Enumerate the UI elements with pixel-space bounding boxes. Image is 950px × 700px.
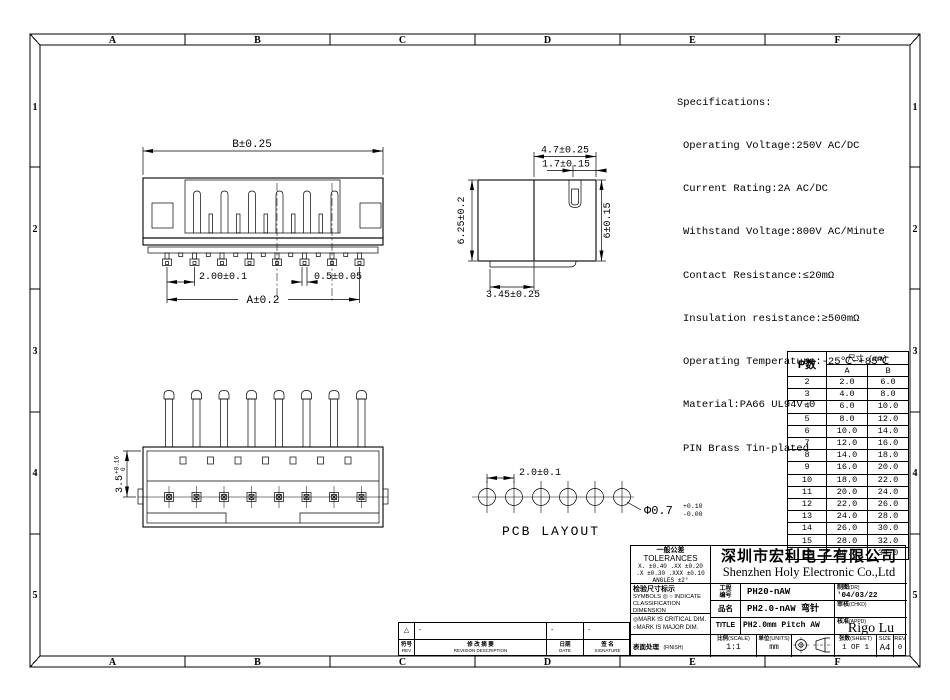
frame-col-label: E — [689, 35, 696, 46]
frame-col-label: A — [109, 35, 117, 46]
size-box: SIZE A4 — [877, 635, 894, 657]
pcb-layout-caption: PCB LAYOUT — [502, 524, 600, 539]
part-no-label: 工程编号 — [711, 584, 741, 601]
spec-line: Current Rating:2A AC/DC — [677, 182, 889, 196]
front-view: B±0.25 2.00±0.1 0.5±0.05 A±0.2 — [143, 139, 383, 307]
frame-col-label: B — [254, 657, 261, 668]
units-value: mm — [757, 643, 791, 653]
spec-line: Contact Resistance:≤20mΩ — [677, 269, 889, 283]
units-label-cn: 单位 — [758, 636, 769, 642]
sheet-label-cn: 张数 — [839, 636, 850, 642]
company-box: 深圳市宏利电子有限公司 Shenzhen Holy Electronic Co.… — [711, 546, 907, 584]
tolerance-line: ANGLES ±2° — [631, 577, 710, 584]
revision-header-date: 日期 DATE — [547, 640, 584, 655]
dim-pcb-pitch: 2.0±0.1 — [519, 468, 561, 479]
sheet-value: 1 OF 1 — [835, 643, 876, 653]
frame-row-label: 1 — [913, 102, 918, 113]
symbols-note-line: CLASSIFICATION DIMENSION — [633, 601, 708, 614]
table-row: 58.012.0 — [788, 413, 909, 425]
sheet-box: 张数(SHEET) 1 OF 1 — [835, 635, 877, 657]
drawn-box: 制图(DR) '04/03/22 — [835, 584, 907, 601]
dim-side-height-right: 6±0.15 — [603, 202, 614, 238]
title-value: PH2.0mm Pitch AW DIP CONN — [741, 618, 835, 635]
projection-box — [792, 635, 835, 657]
size-value: A4 — [877, 643, 893, 653]
dim-top-depth: 3.5 +0.16 0 — [114, 456, 128, 493]
side-view: 4.7±0.25 1.7±0.15 6.25±0.2 6±0.15 3.45±0… — [457, 146, 614, 302]
approved-label-en: (APPD) — [849, 619, 866, 625]
frame-col-label: A — [109, 657, 117, 668]
dim-front-pitch: 2.00±0.1 — [199, 272, 247, 283]
finish-label-cn: 表面处理 — [633, 644, 659, 651]
size-table-header-pins: P数 — [788, 352, 827, 377]
scale-label-cn: 比例 — [717, 636, 728, 642]
frame-col-label: F — [834, 657, 840, 668]
frame-row-label: 2 — [913, 224, 918, 235]
title-block: 一般公差 TOLERANCES X. ±0.40 .XX ±0.20 .X ±0… — [630, 545, 906, 656]
frame-row-label: 2 — [33, 224, 38, 235]
revision-entry-signature: - — [584, 623, 631, 640]
checked-label-cn: 审核 — [837, 602, 849, 608]
frame-col-label: F — [834, 35, 840, 46]
table-row: 814.018.0 — [788, 450, 909, 462]
symbols-note-title: 检验尺寸标示 — [633, 585, 708, 594]
specifications-title: Specifications: — [677, 96, 889, 110]
checked-label-en: (CHKD) — [849, 602, 867, 608]
marks-box: ◎MARK IS CRITICAL DIM. ○MARK IS MAJOR DI… — [631, 614, 711, 635]
finish-label-en: (FINISH) — [663, 645, 683, 651]
critical-dim-note: ◎MARK IS CRITICAL DIM. — [633, 616, 708, 624]
product-name-label: 品名 — [711, 601, 741, 618]
table-row: 916.020.0 — [788, 462, 909, 474]
tolerance-line: X. ±0.40 .XX ±0.20 — [631, 563, 710, 570]
size-table: P数 尺寸 (mm) A B 22.06.034.08.046.010.058.… — [787, 351, 909, 560]
dim-front-width-top: B±0.25 — [232, 139, 272, 151]
drawn-label-en: (DR) — [849, 585, 860, 591]
table-row: 34.08.0 — [788, 389, 909, 401]
frame-row-label: 3 — [33, 346, 38, 357]
top-view: 3.5 +0.16 0 — [114, 391, 389, 528]
scale-box: 比例(SCALE) 1:1 — [711, 635, 757, 657]
title-label: TITLE — [711, 618, 741, 635]
drawn-label-cn: 制图 — [837, 585, 849, 591]
projection-symbol-icon — [792, 635, 833, 655]
symbols-note-box: 检验尺寸标示 SYMBOLS ◎ ○ INDICATE CLASSIFICATI… — [631, 584, 711, 614]
rev-value: 0 — [894, 643, 906, 653]
frame-row-label: 4 — [33, 468, 38, 479]
dim-side-slot: 1.7±0.15 — [542, 160, 590, 171]
size-table-header-dim: 尺寸 (mm) — [827, 352, 909, 365]
drawn-value: '04/03/22 — [837, 592, 905, 600]
frame-col-label: D — [544, 35, 551, 46]
approved-box: 核准(APPD) Rigo Lu — [835, 618, 907, 635]
product-name-value: PH2.0-nAW 弯针 — [741, 601, 835, 618]
part-no-value: PH20-nAW — [741, 584, 835, 601]
frame-row-label: 4 — [913, 468, 918, 479]
table-row: 1018.022.0 — [788, 474, 909, 486]
revision-header-description: 修 改 摘 要 REVISION DESCRIPTION — [415, 640, 547, 655]
company-name-en: Shenzhen Holy Electronic Co.,Ltd — [711, 565, 907, 580]
revision-header-signature: 签 名 SIGNATURE — [584, 640, 631, 655]
spec-line: Operating Voltage:250V AC/DC — [677, 139, 889, 153]
spec-line: Insulation resistance:≥500mΩ — [677, 312, 889, 326]
tolerance-title-en: TOLERANCES — [631, 555, 710, 563]
major-dim-note: ○MARK IS MAJOR DIM. — [633, 624, 708, 632]
table-row: 1426.030.0 — [788, 523, 909, 535]
approved-label-cn: 核准 — [837, 619, 849, 625]
table-row: 1120.024.0 — [788, 486, 909, 498]
frame-row-label: 5 — [33, 590, 38, 601]
sheet-label-en: (SHEET) — [850, 636, 872, 642]
dim-front-pin-width: 0.5±0.05 — [314, 272, 362, 283]
svg-text:0: 0 — [120, 467, 127, 471]
dim-pcb-hole-diameter: Φ0.7 — [644, 504, 673, 518]
size-table-header-a: A — [827, 365, 868, 377]
size-table-header-b: B — [868, 365, 909, 377]
table-row: 22.06.0 — [788, 377, 909, 389]
dim-front-width-bottom: A±0.2 — [246, 295, 279, 307]
symbols-note-line: SYMBOLS ◎ ○ INDICATE — [633, 594, 708, 601]
frame-col-label: D — [544, 657, 551, 668]
table-row: 1222.026.0 — [788, 498, 909, 510]
revision-entry-description: - — [415, 623, 547, 640]
table-row: 1324.028.0 — [788, 511, 909, 523]
revision-header-rev: 符号 REV — [399, 640, 415, 655]
size-label: SIZE — [877, 635, 893, 643]
frame-col-label: C — [399, 657, 406, 668]
revision-entry-date: - — [547, 623, 584, 640]
finish-box: 表面处理 (FINISH) — [631, 635, 711, 657]
table-row: 712.016.0 — [788, 437, 909, 449]
scale-value: 1:1 — [711, 643, 756, 653]
company-name-cn: 深圳市宏利电子有限公司 — [711, 548, 907, 565]
dim-pcb-hole-tol-upper: +0.10 — [683, 503, 703, 510]
drawing-page: A B C D E F A B C D E F 1 2 3 4 5 1 2 3 … — [0, 0, 950, 700]
rev-label: REV — [894, 635, 906, 643]
frame-col-label: E — [689, 657, 696, 668]
units-box: 单位(UNITS) mm — [757, 635, 792, 657]
table-row: 610.014.0 — [788, 425, 909, 437]
pcb-layout: 2.0±0.1 Φ0.7 +0.10 -0.00 PCB LAYOUT — [472, 468, 703, 539]
dim-side-pin-length: 3.45±0.25 — [486, 290, 540, 301]
frame-col-label: B — [254, 35, 261, 46]
tolerance-box: 一般公差 TOLERANCES X. ±0.40 .XX ±0.20 .X ±0… — [631, 546, 711, 584]
revision-strip: △ - - - 符号 REV 修 改 摘 要 REVISION DESCRIPT… — [398, 622, 630, 656]
frame-col-label: C — [399, 35, 406, 46]
table-row: 46.010.0 — [788, 401, 909, 413]
svg-text:3.5: 3.5 — [115, 475, 126, 493]
dim-side-top-width: 4.7±0.25 — [541, 146, 589, 157]
frame-row-label: 3 — [913, 346, 918, 357]
tolerance-line: .X ±0.30 .XXX ±0.10 — [631, 570, 710, 577]
units-label-en: (UNITS) — [769, 636, 789, 642]
frame-row-label: 5 — [913, 590, 918, 601]
spec-line: Withstand Voltage:800V AC/Minute — [677, 225, 889, 239]
dim-pcb-hole-tol-lower: -0.00 — [683, 511, 703, 518]
scale-label-en: (SCALE) — [728, 636, 750, 642]
revision-entry-symbol: △ — [399, 623, 415, 640]
frame-row-label: 1 — [33, 102, 38, 113]
rev-box: REV 0 — [894, 635, 906, 657]
checked-box: 审核(CHKD) — [835, 601, 907, 618]
dim-side-height-left: 6.25±0.2 — [457, 196, 468, 244]
